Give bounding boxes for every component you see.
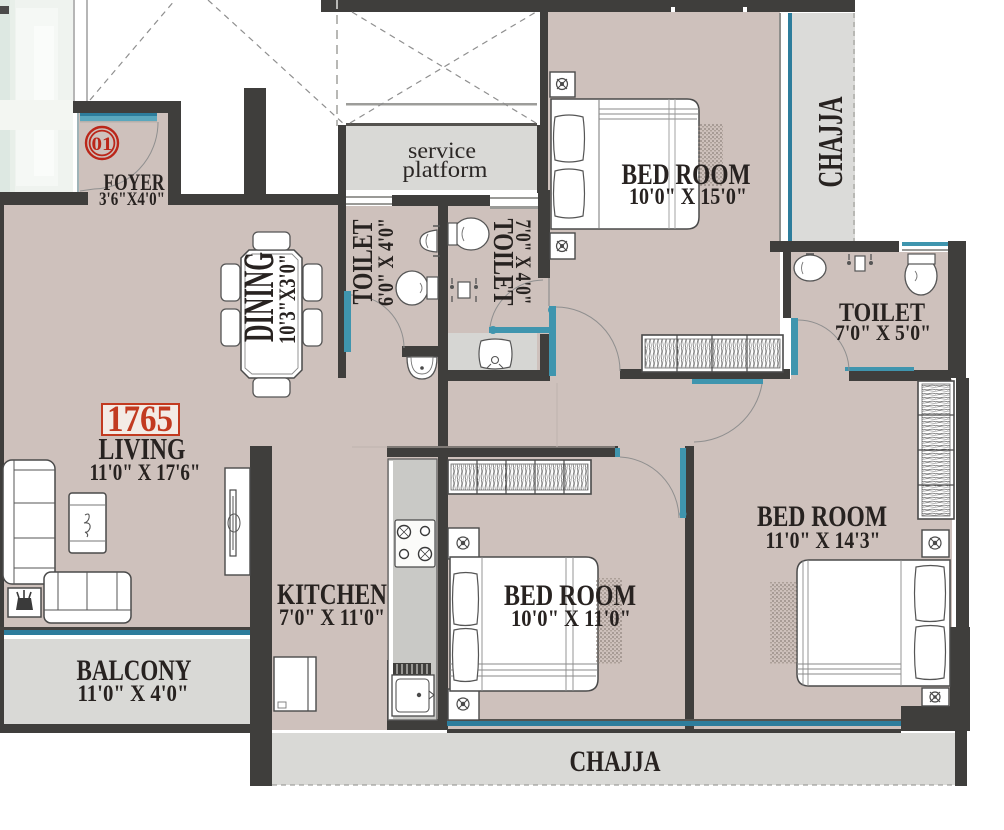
svg-text:platform: platform — [403, 157, 488, 183]
svg-text:7'0" X 4'0": 7'0" X 4'0" — [511, 220, 536, 305]
svg-text:11'0" X 17'6": 11'0" X 17'6" — [90, 459, 201, 485]
svg-text:7'0" X 5'0": 7'0" X 5'0" — [835, 322, 931, 345]
svg-text:CHAJJA: CHAJJA — [570, 745, 662, 778]
svg-text:11'0" X 4'0": 11'0" X 4'0" — [78, 680, 189, 706]
svg-text:7'0" X 11'0": 7'0" X 11'0" — [279, 605, 385, 630]
svg-text:11'0" X 14'3": 11'0" X 14'3" — [766, 527, 881, 553]
svg-text:01: 01 — [92, 134, 113, 155]
svg-text:3'6"X4'0": 3'6"X4'0" — [99, 188, 165, 209]
svg-text:10'0" X 15'0": 10'0" X 15'0" — [629, 183, 747, 209]
svg-text:6'0" X 4'0": 6'0" X 4'0" — [373, 218, 398, 306]
svg-text:10'0" X 11'0": 10'0" X 11'0" — [511, 605, 631, 631]
svg-text:10'3"X3'0": 10'3"X3'0" — [274, 254, 300, 344]
svg-text:CHAJJA: CHAJJA — [811, 96, 849, 187]
